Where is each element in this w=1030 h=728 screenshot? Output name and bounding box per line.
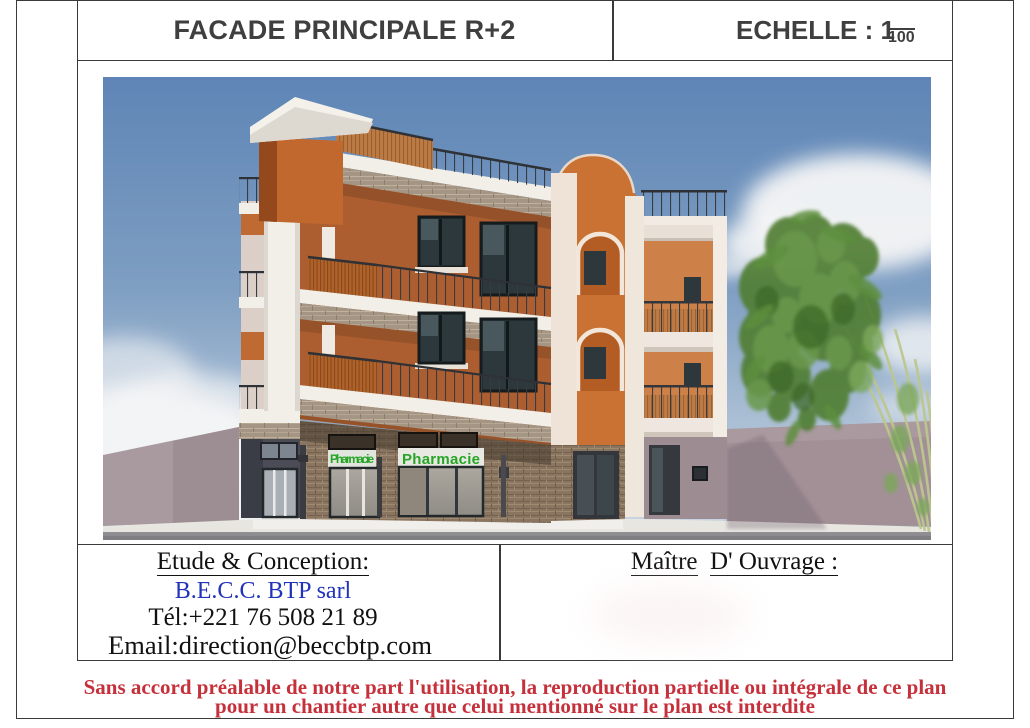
svg-text:Pharmacie: Pharmacie bbox=[402, 451, 480, 468]
svg-text:Pharmacie: Pharmacie bbox=[330, 452, 374, 466]
